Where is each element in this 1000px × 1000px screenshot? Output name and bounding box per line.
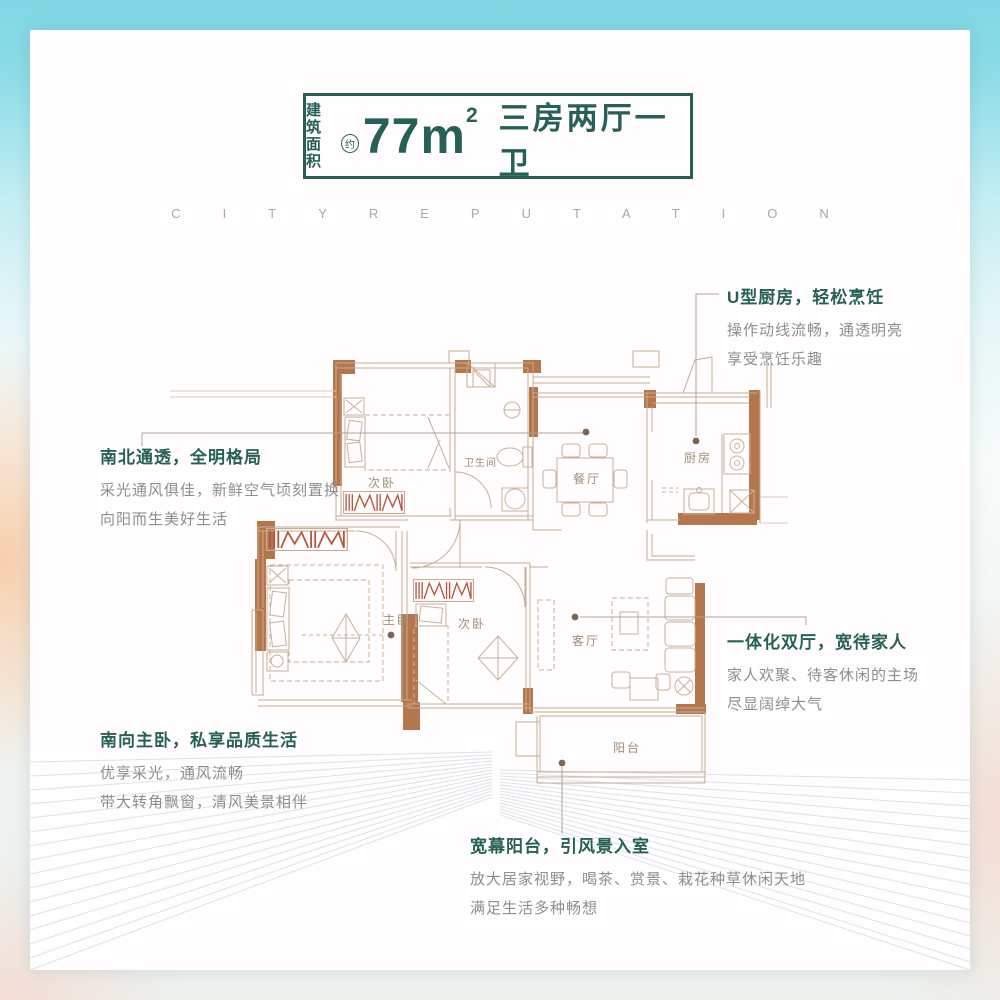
room-label-master: 主卧: [383, 613, 411, 627]
callout-dot-living: [572, 614, 579, 621]
annotation-master: 南向主卧，私享品质生活 优享采光，通风流畅 带大转角飘窗，清风美景相伴: [100, 726, 308, 817]
callout-dot-master: [388, 632, 395, 639]
annotation-balcony-title: 宽幕阳台，引风景入室: [470, 832, 806, 857]
annotation-balcony-line1: 放大居家视野，喝茶、赏景、栽花种草休闲天地: [470, 866, 806, 895]
room-label-bedroom-top: 次卧: [368, 476, 396, 490]
annotation-master-title: 南向主卧，私享品质生活: [100, 726, 308, 751]
room-label-kitchen: 厨房: [684, 450, 712, 465]
annotation-master-line2: 带大转角飘窗，清风美景相伴: [100, 789, 308, 818]
callout-dot-dining: [583, 429, 590, 436]
callout-dot-balcony: [559, 760, 566, 767]
room-label-balcony: 阳台: [613, 740, 641, 755]
annotation-kitchen: U型厨房，轻松烹饪 操作动线流畅，通透明亮 享受烹饪乐趣: [727, 283, 903, 374]
room-label-living: 客厅: [572, 633, 600, 648]
room-label-dining: 餐厅: [573, 471, 601, 486]
plan-wall-lines: [252, 351, 771, 783]
callout-dot-kitchen: [693, 438, 700, 445]
annotation-bright-title: 南北通透，全明格局: [100, 443, 340, 468]
annotation-kitchen-title: U型厨房，轻松烹饪: [727, 283, 903, 308]
annotation-living-title: 一体化双厅，宽待家人: [727, 628, 919, 653]
annotation-bright: 南北通透，全明格局 采光通风俱佳，新鲜空气顷刻置换 向阳而生美好生活: [100, 443, 340, 534]
gradient-frame: 建筑 面积 约 77m2 三房两厅一卫 CITYREPUTATION: [0, 0, 1000, 1000]
annotation-kitchen-line2: 享受烹饪乐趣: [727, 346, 903, 375]
room-label-bathroom: 卫生间: [464, 456, 497, 469]
annotation-balcony: 宽幕阳台，引风景入室 放大居家视野，喝茶、赏景、栽花种草休闲天地 满足生活多种畅…: [470, 832, 806, 923]
annotation-bright-line2: 向阳而生美好生活: [100, 506, 340, 535]
annotation-living-line1: 家人欢聚、待客休闲的主场: [727, 662, 919, 691]
annotation-bright-line1: 采光通风俱佳，新鲜空气顷刻置换: [100, 477, 340, 506]
annotation-balcony-line2: 满足生活多种畅想: [470, 895, 806, 924]
annotation-living-line2: 尽显阔绰大气: [727, 691, 919, 720]
room-label-bedroom-mid: 次卧: [458, 617, 486, 631]
annotation-master-line1: 优享采光，通风流畅: [100, 760, 308, 789]
annotation-living: 一体化双厅，宽待家人 家人欢聚、待客休闲的主场 尽显阔绰大气: [727, 628, 919, 719]
annotation-kitchen-line1: 操作动线流畅，通透明亮: [727, 317, 903, 346]
plan-walls-brown: [255, 360, 760, 730]
